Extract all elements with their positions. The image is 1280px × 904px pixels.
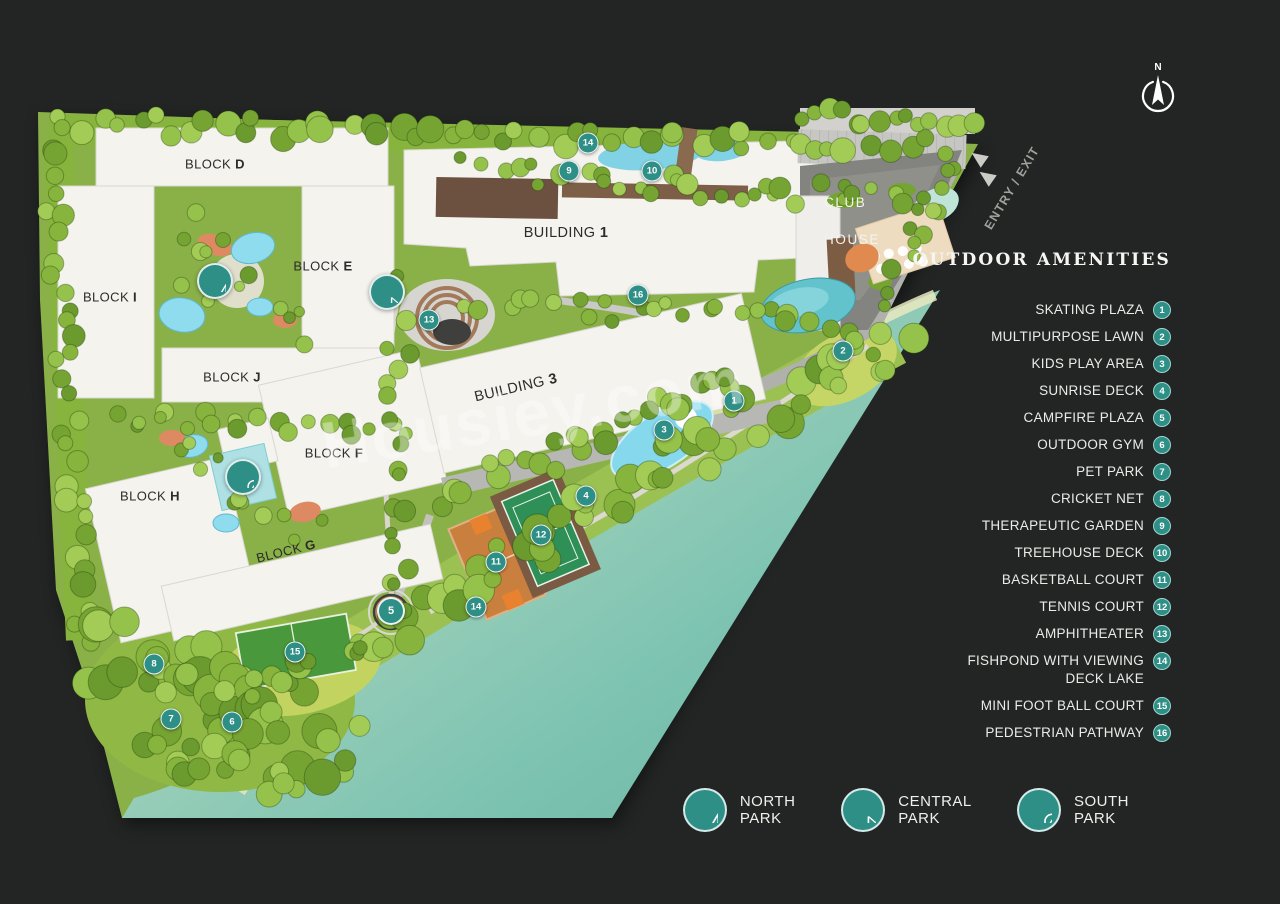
amenity-label: PEDESTRIAN PATHWAY [985, 724, 1144, 742]
amenity-row-3: KIDS PLAY AREA3 [841, 355, 1171, 373]
amenity-number-badge: 10 [1153, 544, 1171, 562]
legend-item-south-park[interactable]: SOUTH PARK [1017, 788, 1175, 832]
amenity-label: AMPHITHEATER [1036, 625, 1144, 643]
amenity-number-badge: 7 [1153, 463, 1171, 481]
amenity-number-badge: 4 [1153, 382, 1171, 400]
amenity-label: KIDS PLAY AREA [1031, 355, 1144, 373]
amenity-label: TREEHOUSE DECK [1015, 544, 1144, 562]
amenity-row-9: THERAPEUTIC GARDEN9 [841, 517, 1171, 535]
amenity-row-12: TENNIS COURT12 [841, 598, 1171, 616]
amenity-number-badge: 11 [1153, 571, 1171, 589]
amenity-label: SUNRISE DECK [1039, 382, 1144, 400]
amenity-number-badge: 6 [1153, 436, 1171, 454]
amenity-row-5: CAMPFIRE PLAZA5 [841, 409, 1171, 427]
amenity-list: SKATING PLAZA1MULTIPURPOSE LAWN2KIDS PLA… [841, 301, 1171, 742]
parks-legend: NORTH PARKCENTRAL PARKSOUTH PARK [683, 788, 1175, 832]
amenity-number-badge: 2 [1153, 328, 1171, 346]
amenity-label: FISHPOND WITH VIEWINGDECK LAKE [967, 652, 1144, 688]
legend-label: SOUTH PARK [1074, 793, 1175, 827]
amenity-number-badge: 8 [1153, 490, 1171, 508]
central-park-icon [841, 788, 885, 832]
amenity-label: MINI FOOT BALL COURT [981, 697, 1144, 715]
amenity-row-6: OUTDOOR GYM6 [841, 436, 1171, 454]
south-park-icon [1017, 788, 1061, 832]
amenity-row-7: PET PARK7 [841, 463, 1171, 481]
amenity-label: BASKETBALL COURT [1002, 571, 1144, 589]
amenity-label: CAMPFIRE PLAZA [1024, 409, 1144, 427]
amenity-number-badge: 14 [1153, 652, 1171, 670]
amenity-row-15: MINI FOOT BALL COURT15 [841, 697, 1171, 715]
amenity-row-11: BASKETBALL COURT11 [841, 571, 1171, 589]
amenity-number-badge: 12 [1153, 598, 1171, 616]
compass: N [1136, 62, 1180, 124]
amenity-label: TENNIS COURT [1039, 598, 1144, 616]
amenity-number-badge: 5 [1153, 409, 1171, 427]
amenity-row-10: TREEHOUSE DECK10 [841, 544, 1171, 562]
amenity-row-1: SKATING PLAZA1 [841, 301, 1171, 319]
amenity-label: SKATING PLAZA [1035, 301, 1144, 319]
amenity-label: OUTDOOR GYM [1037, 436, 1144, 454]
legend-label: CENTRAL PARK [898, 793, 1017, 827]
legend-item-central-park[interactable]: CENTRAL PARK [841, 788, 1017, 832]
amenity-row-14: FISHPOND WITH VIEWINGDECK LAKE14 [841, 652, 1171, 688]
panel-title: OUTDOOR AMENITIES [841, 250, 1171, 270]
legend-label: NORTH PARK [740, 793, 842, 827]
amenity-number-badge: 3 [1153, 355, 1171, 373]
amenity-row-4: SUNRISE DECK4 [841, 382, 1171, 400]
amenity-number-badge: 16 [1153, 724, 1171, 742]
amenity-row-16: PEDESTRIAN PATHWAY16 [841, 724, 1171, 742]
amenity-number-badge: 9 [1153, 517, 1171, 535]
amenity-row-2: MULTIPURPOSE LAWN2 [841, 328, 1171, 346]
site-plan-page: BLOCK DBLOCK EBLOCK IBLOCK JBLOCK FBLOCK… [0, 0, 1280, 904]
amenity-row-8: CRICKET NET8 [841, 490, 1171, 508]
amenity-number-badge: 13 [1153, 625, 1171, 643]
north-park-icon [683, 788, 727, 832]
amenity-number-badge: 15 [1153, 697, 1171, 715]
amenity-label: CRICKET NET [1051, 490, 1144, 508]
amenity-label: PET PARK [1076, 463, 1144, 481]
outdoor-amenities-panel: OUTDOOR AMENITIES SKATING PLAZA1MULTIPUR… [841, 250, 1171, 751]
amenity-label: THERAPEUTIC GARDEN [982, 517, 1144, 535]
amenity-number-badge: 1 [1153, 301, 1171, 319]
compass-n-label: N [1154, 62, 1161, 73]
legend-item-north-park[interactable]: NORTH PARK [683, 788, 841, 832]
amenity-row-13: AMPHITHEATER13 [841, 625, 1171, 643]
amenity-label: MULTIPURPOSE LAWN [991, 328, 1144, 346]
